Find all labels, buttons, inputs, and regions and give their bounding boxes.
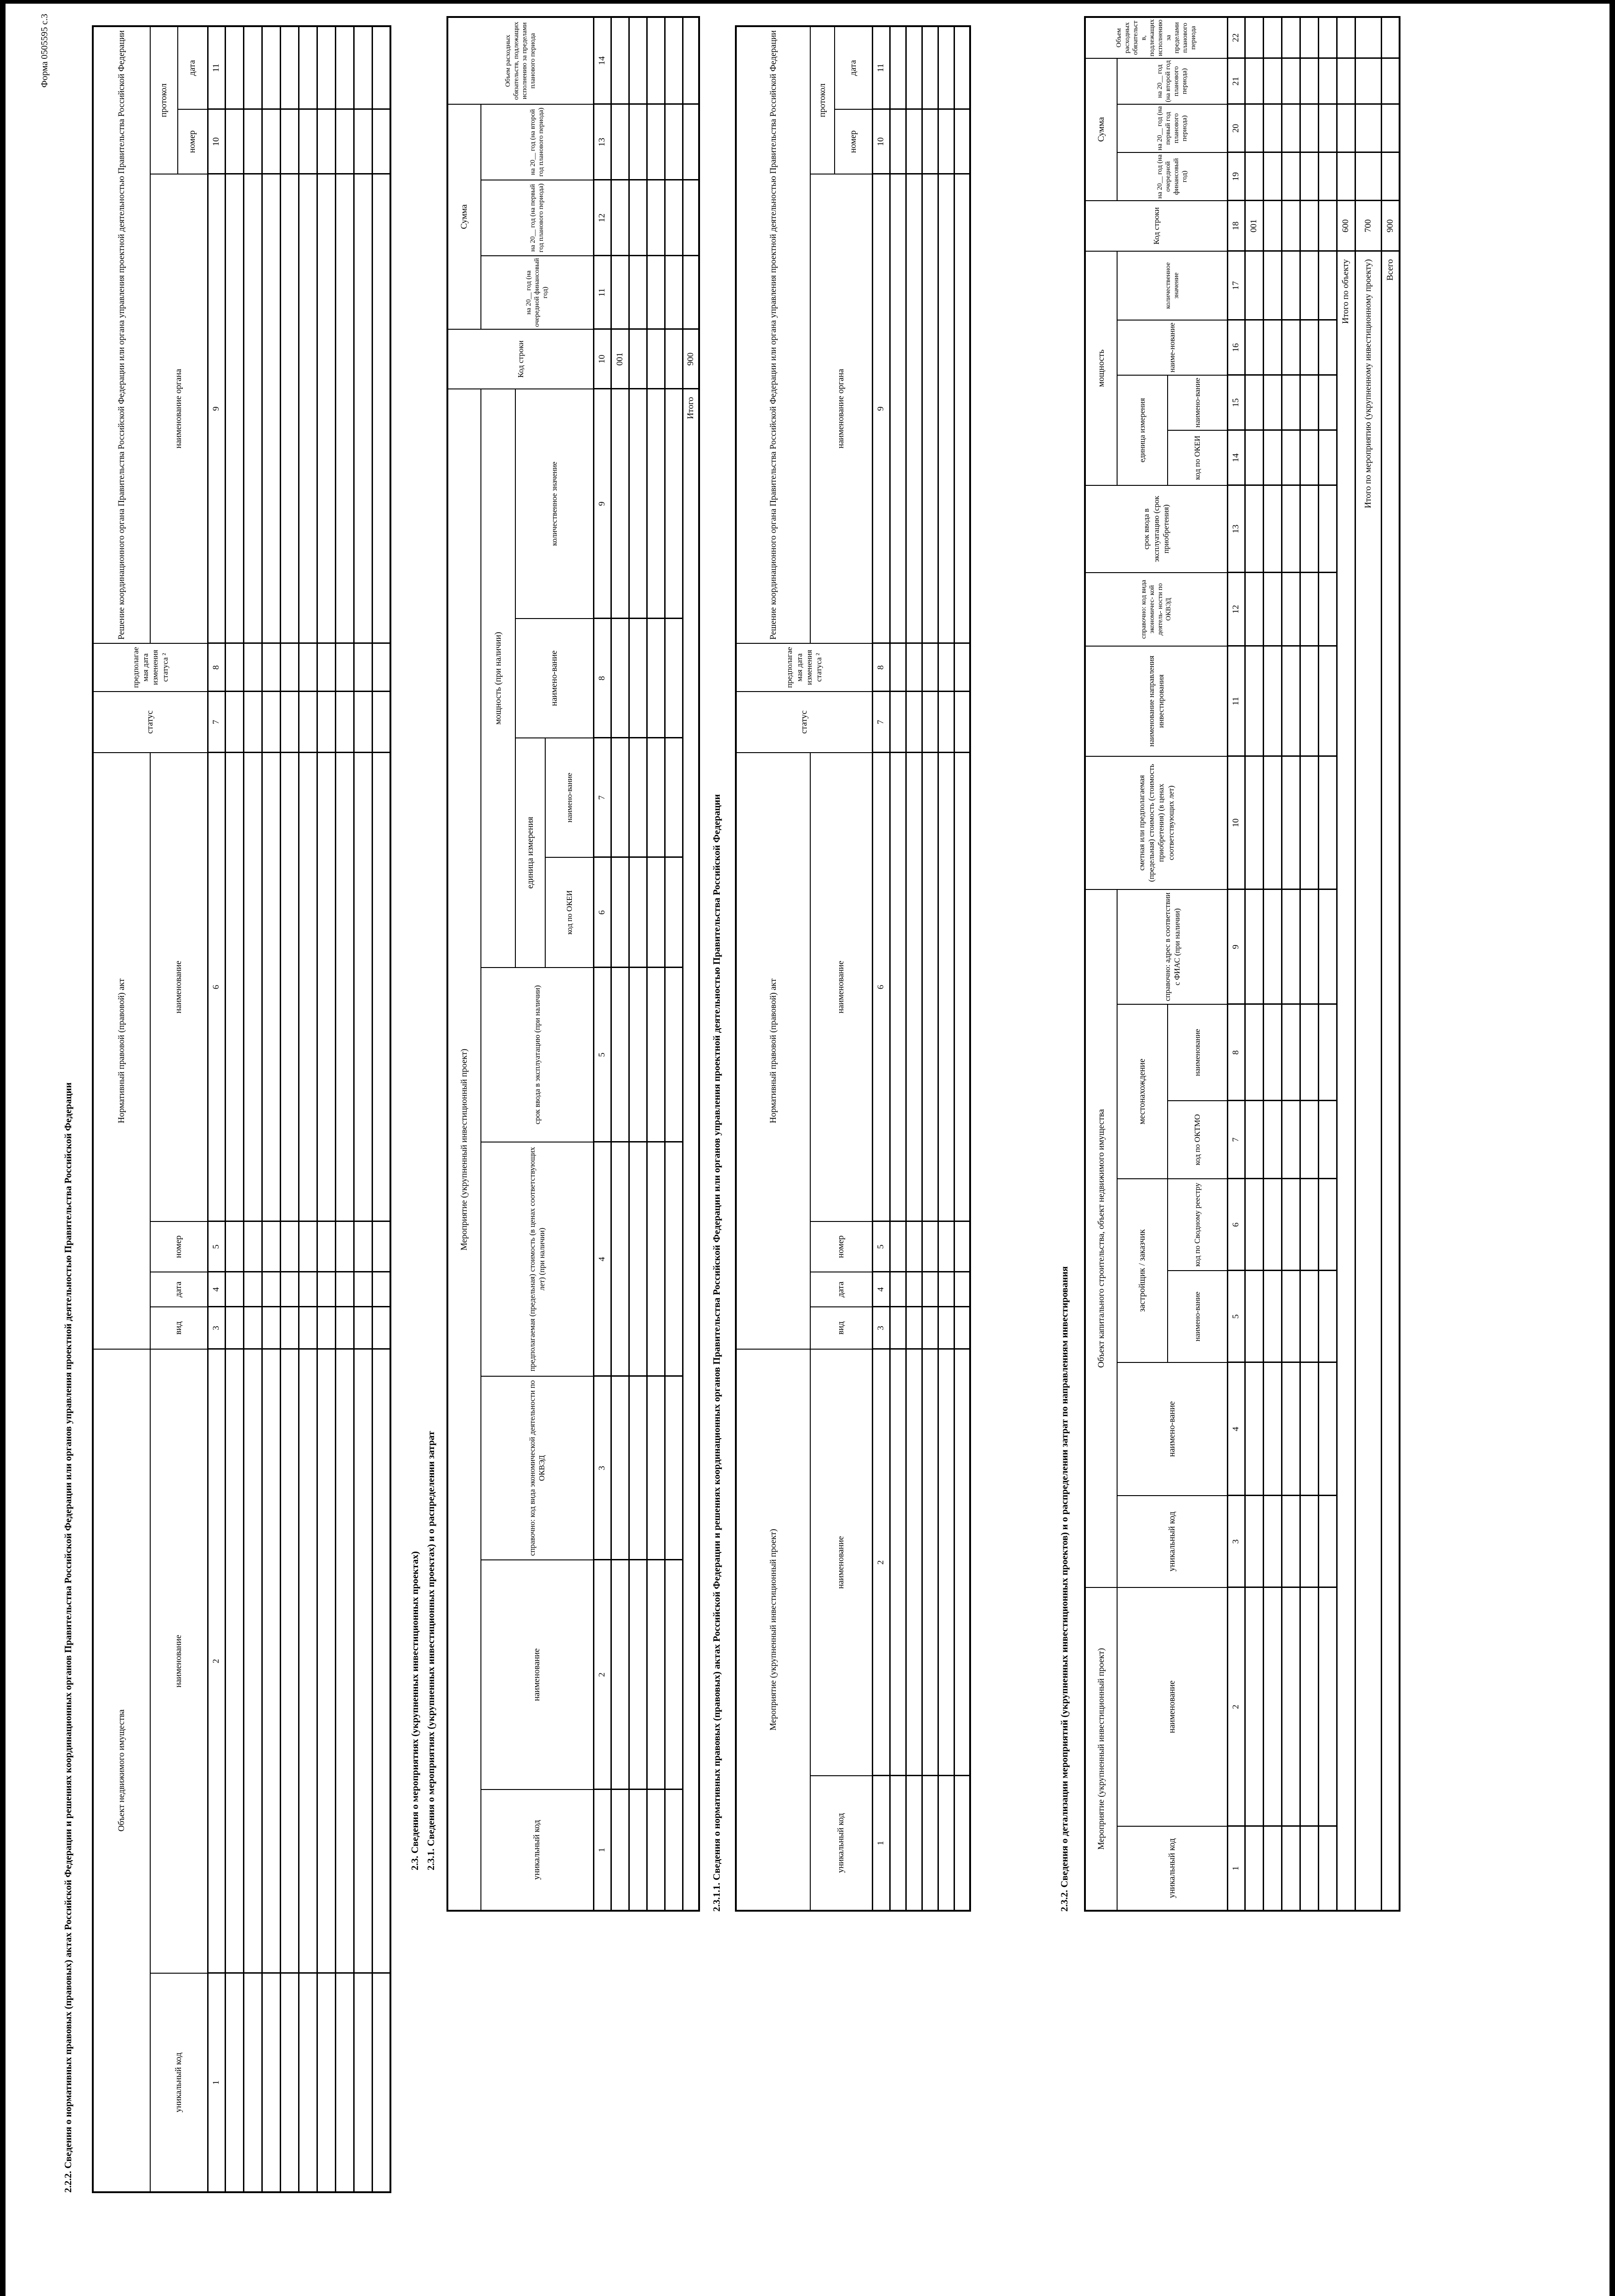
data-cell [1263,889,1282,1004]
data-cell [629,389,647,619]
data-cell [1282,375,1300,430]
column-numbers-row: 12345678910111213141516171819202122 [1227,17,1245,1911]
data-cell [647,17,665,104]
table-row [280,26,299,2192]
data-cell [262,1307,280,1349]
data-cell [647,619,665,738]
data-cell [954,643,970,692]
data-cell [335,1307,354,1349]
data-cell [1337,58,1355,104]
data-cell [225,109,243,174]
data-cell [299,174,317,643]
col-okei: код по ОКЕИ [1168,430,1227,485]
col-obyem: Объем расходных обязательств, подлежащих… [1085,17,1227,58]
data-cell [335,692,354,753]
data-cell [1300,430,1318,485]
group-moshchnost: мощность [1085,251,1117,485]
data-cell [372,109,390,174]
data-cell [317,1221,335,1272]
data-cell [243,692,262,753]
col-obj-unik-kod: уникальный код [1117,1496,1227,1587]
data-cell [280,109,299,174]
data-cell [906,1776,922,1911]
group-ed-izmereniya: единица измерения [1117,375,1168,485]
col-naimenovanie-akta: наименование [150,753,208,1221]
data-cell [1318,1179,1337,1271]
column-number: 4 [593,1142,611,1376]
data-cell [262,174,280,643]
column-number: 13 [1227,485,1245,573]
data-cell [1263,1362,1282,1496]
col-naimenovanie: наименование [810,1349,872,1776]
column-number: 4 [1227,1362,1245,1496]
data-cell [243,26,262,109]
data-cell [1355,104,1381,152]
data-cell [1318,375,1337,430]
col-zastr-naimenovanie: наимено-вание [1168,1271,1227,1362]
data-cell [335,26,354,109]
data-cell [243,1272,262,1307]
col-data: дата [810,1272,872,1307]
data-cell [647,1376,665,1560]
total-label: Итого по объекту [1337,251,1355,1911]
section-title-2-2-2: 2.2.2. Сведения о нормативных правовых (… [62,1082,74,2193]
data-cell [629,738,647,857]
col-stoimost: предполагаемая (предельная) стоимость (в… [481,1142,593,1376]
data-cell [225,1221,243,1272]
data-cell [1245,430,1263,485]
data-cell [262,1272,280,1307]
data-cell [647,857,665,968]
table-row [262,26,280,2192]
data-cell [1263,1271,1282,1362]
column-number: 1 [208,1973,225,2192]
data-cell [938,692,954,753]
col-srok-vvoda: срок ввода в эксплуатацию (при наличии) [481,968,593,1142]
group-reshenie: Решение координационного органа Правител… [736,26,810,643]
data-cell [317,1272,335,1307]
data-cell [1318,104,1337,152]
data-cell [1300,1496,1318,1587]
data-cell [225,174,243,643]
column-number: 9 [872,174,890,643]
data-cell [372,753,390,1221]
table-row [1282,17,1300,1911]
column-number: 10 [872,109,890,174]
column-number: 17 [1227,251,1245,320]
column-number: 1 [593,1790,611,1911]
data-cell [1355,17,1381,58]
data-cell [1245,104,1263,152]
col-protokol-data: дата [178,26,208,109]
table-row [1263,17,1282,1911]
data-cell [225,692,243,753]
data-cell [372,643,390,692]
data-cell [954,174,970,643]
data-cell [1300,1362,1318,1496]
data-cell [354,1349,372,1973]
data-cell [335,1973,354,2192]
data-cell [1381,17,1400,58]
data-cell [665,256,683,329]
data-cell [1282,1271,1300,1362]
data-cell [243,753,262,1221]
group-mestonakhozhdenie: местонахождение [1117,1004,1168,1179]
data-cell [1355,152,1381,201]
data-cell [1245,1587,1263,1826]
data-cell [1282,1362,1300,1496]
table-2-3-1-1-npa-meropriyatie: Мероприятие (укрупненный инвестиционный … [735,25,971,1912]
data-cell [299,1973,317,2192]
data-cell [906,692,922,753]
data-cell [372,1307,390,1349]
data-cell [1318,1826,1337,1911]
data-cell [335,109,354,174]
data-cell [372,1973,390,2192]
data-cell [647,1790,665,1911]
data-cell [262,26,280,109]
data-cell [1318,58,1337,104]
data-cell [647,104,665,180]
data-cell [890,1307,906,1349]
group-reshenie: Решение координационного органа Правител… [93,26,150,643]
data-cell [611,1376,629,1560]
data-cell [1245,17,1263,58]
data-cell [1300,201,1318,251]
group-ed-izmereniya: единица измерения [515,738,545,968]
data-cell [629,256,647,329]
data-cell [954,753,970,1221]
table-row: 001 [1245,17,1263,1911]
data-cell [262,1349,280,1973]
data-cell [1300,104,1318,152]
column-number: 9 [1227,889,1245,1004]
data-cell [1245,1826,1263,1911]
col-oktmo: код по ОКТМО [1168,1101,1227,1179]
data-cell [243,1973,262,2192]
data-cell [665,738,683,857]
data-cell [1300,1004,1318,1101]
data-cell [1282,573,1300,646]
data-cell [1381,58,1400,104]
data-cell [280,1973,299,2192]
data-cell [611,738,629,857]
table-2-3-2-detalizaciya: Мероприятие (укрупненный инвестиционный … [1084,16,1400,1912]
column-numbers-row: 1234567891011121314 [593,17,611,1911]
data-cell [1245,485,1263,573]
col-okved: справочно: код вида экономической деятел… [481,1376,593,1560]
column-number: 7 [872,692,890,753]
data-cell [1245,646,1263,756]
table-row [1300,17,1318,1911]
data-cell [1300,1826,1318,1911]
data-cell [647,329,665,389]
data-cell [1318,573,1337,646]
data-cell [1300,485,1318,573]
data-cell [1318,756,1337,889]
table-row [938,26,954,1911]
data-cell [1300,17,1318,58]
data-cell [1337,17,1355,58]
data-cell [1245,1271,1263,1362]
data-cell [1318,1271,1337,1362]
data-cell [1282,485,1300,573]
data-cell [1300,375,1318,430]
data-cell [354,109,372,174]
data-cell [280,1272,299,1307]
data-cell [629,1790,647,1911]
data-cell [1282,1004,1300,1101]
data-cell [317,1307,335,1349]
col-moshn-naimenovanie: наимено-вание [515,619,593,738]
data-cell [647,256,665,329]
table-row [317,26,335,2192]
data-cell [1282,1587,1300,1826]
column-number: 6 [1227,1179,1245,1271]
data-cell [1337,152,1355,201]
data-cell [1318,1101,1337,1179]
group-meropriyatie: Мероприятие (укрупненный инвестиционный … [1085,1587,1117,1911]
data-cell [1355,58,1381,104]
data-cell [954,109,970,174]
section-title-2-3-1: 2.3.1. Сведения о мероприятиях (укрупнен… [425,1431,437,1870]
data-cell [1263,573,1282,646]
data-cell [1282,17,1300,58]
data-cell [1245,1101,1263,1179]
data-cell [629,104,647,180]
data-cell [890,692,906,753]
total-line-code: 700 [1355,201,1381,251]
data-cell [647,180,665,256]
column-number: 11 [872,26,890,109]
data-cell [1318,889,1337,1004]
data-cell [372,692,390,753]
scanned-form-page: Форма 0505595 с.3 2.2.2. Сведения о норм… [0,0,1615,2296]
data-cell [1318,646,1337,756]
data-cell [1381,152,1400,201]
group-zastroyshchik: застройщик / заказчик [1117,1179,1168,1362]
table-row [629,17,647,1911]
data-cell [354,1272,372,1307]
col-god-vtoroy: на 20__ год (на второй год планового пер… [1117,58,1227,104]
data-cell [354,1307,372,1349]
data-cell [1282,1179,1300,1271]
data-cell [1263,1004,1282,1101]
data-cell [1318,17,1337,58]
group-protokol: протокол [150,26,178,174]
data-cell [647,968,665,1142]
col-god-vtoroy: на 20__ год (на второй год планового пер… [481,104,593,180]
column-number: 11 [208,26,225,109]
column-number: 9 [208,174,225,643]
data-cell [280,1221,299,1272]
form-number-label: Форма 0505595 с.3 [40,14,50,88]
table-row [665,17,683,1911]
data-cell [372,1272,390,1307]
group-summa: Сумма [447,104,481,329]
data-cell [335,1349,354,1973]
total-row: Итого900 [683,17,699,1911]
table-row [372,26,390,2192]
column-number: 5 [208,1221,225,1272]
group-oks: Объект капитального строительства, объек… [1085,889,1117,1587]
col-naim-organa: наименование органа [810,174,872,643]
data-cell [335,1221,354,1272]
data-cell [1245,1004,1263,1101]
col-okei: код по ОКЕИ [545,857,593,968]
data-cell [299,753,317,1221]
data-cell [611,104,629,180]
data-cell [906,753,922,1221]
scan-edge-bottom [1609,0,1615,2296]
data-cell [906,26,922,109]
data-cell [1245,152,1263,201]
data-cell [280,753,299,1221]
data-cell [280,174,299,643]
col-god-perviy: на 20__ год (на первый год планового пер… [481,180,593,256]
col-kolich-znachenie: количественное значение [515,389,593,619]
data-cell [1245,573,1263,646]
data-cell [354,643,372,692]
column-number: 4 [208,1272,225,1307]
total-label: Итого по мероприятию (укрупненному инвес… [1355,251,1381,1911]
col-srok-vvoda: срок ввода в эксплуатацию (срок приобрет… [1085,485,1227,573]
data-cell [647,389,665,619]
data-cell [954,1307,970,1349]
column-number: 8 [1227,1004,1245,1101]
data-cell [280,26,299,109]
data-cell [243,109,262,174]
column-number: 3 [208,1307,225,1349]
data-cell [954,26,970,109]
column-number: 7 [593,738,611,857]
column-number: 8 [593,619,611,738]
data-cell [317,109,335,174]
data-cell [225,1307,243,1349]
col-mer-naimenovanie: наименование [1117,1587,1227,1826]
data-cell [1300,646,1318,756]
data-cell [1282,646,1300,756]
data-cell [890,26,906,109]
data-cell [954,1349,970,1776]
data-cell [906,1272,922,1307]
column-number: 15 [1227,375,1245,430]
data-cell [1300,320,1318,375]
data-cell [1263,375,1282,430]
col-unik-kod: уникальный код [481,1790,593,1911]
data-cell [1318,1587,1337,1826]
column-number: 6 [872,753,890,1221]
data-cell [890,174,906,643]
data-cell [317,174,335,643]
data-cell [299,1272,317,1307]
column-number: 20 [1227,104,1245,152]
data-cell [1245,375,1263,430]
column-number: 3 [1227,1496,1245,1587]
data-cell [262,1973,280,2192]
data-cell [317,26,335,109]
section-title-2-3-2: 2.3.2. Сведения о детализации мероприяти… [1059,1266,1070,1912]
table-row [1318,17,1337,1911]
column-number: 5 [1227,1271,1245,1362]
table-row [922,26,938,1911]
column-number: 12 [593,180,611,256]
data-cell [665,968,683,1142]
data-cell [1263,756,1282,889]
data-cell [372,1349,390,1973]
column-number: 8 [208,643,225,692]
column-number: 10 [208,109,225,174]
data-cell [1282,201,1300,251]
data-cell [890,1776,906,1911]
data-cell [611,180,629,256]
data-cell [665,857,683,968]
total-line-code: 600 [1337,201,1355,251]
total-label: Итого [683,389,699,1911]
table-2-3-1-meropriyatiya: Мероприятие (укрупненный инвестиционный … [446,16,700,1912]
data-cell [665,1376,683,1560]
data-cell [243,643,262,692]
data-cell [280,1349,299,1973]
data-cell [1282,430,1300,485]
data-cell [354,1973,372,2192]
data-cell [922,1221,938,1272]
column-number: 9 [593,389,611,619]
data-cell [611,619,629,738]
col-protokol-data: дата [835,26,872,109]
data-cell [611,1142,629,1376]
column-number: 14 [593,17,611,104]
data-cell [922,109,938,174]
data-cell [890,1272,906,1307]
data-cell [954,1272,970,1307]
data-cell [372,26,390,109]
total-row: Всего900 [1381,17,1400,1911]
data-cell [1263,1101,1282,1179]
data-cell [647,1560,665,1790]
column-number: 1 [1227,1826,1245,1911]
data-cell [225,1973,243,2192]
data-cell [280,643,299,692]
column-number: 7 [1227,1101,1245,1179]
data-cell [629,17,647,104]
data-cell [372,1221,390,1272]
data-cell [922,692,938,753]
group-moshchnost: мощность (при наличии) [481,389,515,968]
data-cell [1263,1587,1282,1826]
col-vid: вид [810,1307,872,1349]
data-cell [629,857,647,968]
data-cell [1282,152,1300,201]
data-cell [1263,251,1282,320]
data-cell [938,174,954,643]
column-number: 6 [593,857,611,968]
data-cell [683,180,699,256]
data-cell [922,1272,938,1307]
column-number: 13 [593,104,611,180]
data-cell [611,389,629,619]
col-naimenovanie: наименование [481,1560,593,1790]
data-cell [1282,1496,1300,1587]
data-cell [354,174,372,643]
col-naim-organa: наименование органа [150,174,208,643]
data-cell [1300,1101,1318,1179]
data-cell [1318,152,1337,201]
line-code: 001 [1245,201,1263,251]
data-cell [1245,889,1263,1004]
data-cell [1318,485,1337,573]
col-mesto-naimenovanie: наименование [1168,1004,1227,1101]
